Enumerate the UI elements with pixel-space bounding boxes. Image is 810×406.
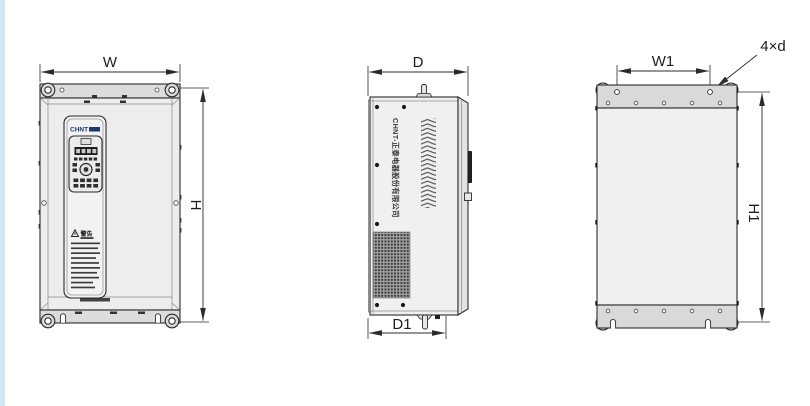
mesh-vent: [373, 232, 410, 298]
dimension-width-mount-label: W1: [652, 53, 675, 70]
side-brand-text: CHNT-正泰电器股份有限公司: [391, 118, 400, 218]
latch: [465, 193, 472, 201]
mount-holes-callout: 4×d: [717, 38, 786, 87]
side-hole: [42, 201, 47, 206]
side-hole: [174, 201, 179, 206]
mount-hole-left: [615, 90, 620, 95]
dimension-width-label: W: [103, 54, 118, 71]
bracket-hole: [60, 88, 64, 92]
mount-holes-note: 4×d: [760, 38, 785, 55]
keypad-tab: [81, 139, 91, 145]
dimension-width-mount: W1: [617, 53, 710, 88]
front-enclosure-body: [39, 98, 182, 310]
back-enclosure-body: [595, 85, 738, 329]
dimension-depth-mount-label: D1: [392, 316, 411, 333]
dimension-depth-label: D: [413, 54, 424, 71]
dimension-depth-mount: D1: [368, 316, 446, 339]
keypad: [69, 136, 102, 192]
mounting-notch: [60, 314, 65, 323]
vfd-dimension-drawing: W H: [0, 0, 810, 406]
dimension-depth: D: [368, 54, 468, 96]
back-top-plate: [597, 85, 737, 108]
side-enclosure-body: CHNT-正泰电器股份有限公司: [369, 85, 473, 330]
keypad-knob-center: [84, 167, 89, 172]
dimension-drawing-page: W H: [0, 0, 810, 406]
mount-hole-right: [708, 90, 713, 95]
mounting-notch: [705, 319, 710, 328]
bottom-mounting-bracket: [40, 310, 180, 328]
back-bottom-plate: [597, 305, 737, 328]
top-stud: [416, 85, 432, 98]
wall-clip: [468, 151, 473, 183]
side-view: D: [368, 54, 472, 339]
front-view: W H: [39, 54, 209, 328]
back-panel: [597, 108, 737, 305]
top-mounting-bracket: [40, 83, 180, 98]
warning-title: 警告: [80, 230, 93, 238]
mounting-notch: [610, 319, 615, 328]
dimension-height: H: [179, 88, 209, 322]
dimension-height-mount-label: H1: [745, 203, 762, 222]
brand-logo: CHNT: [70, 127, 88, 134]
front-cover-strip: CHNT: [64, 116, 106, 298]
back-view: W1 4×d H1: [595, 38, 785, 330]
mounting-notch: [155, 314, 160, 323]
bottom-stud: [417, 315, 440, 329]
back-plate-edge: [458, 97, 468, 315]
louver-vent: [421, 118, 436, 208]
dimension-height-label: H: [187, 200, 204, 211]
bracket-hole: [155, 88, 159, 92]
dimension-width: W: [40, 54, 180, 82]
brand-logo-block: [89, 127, 100, 132]
